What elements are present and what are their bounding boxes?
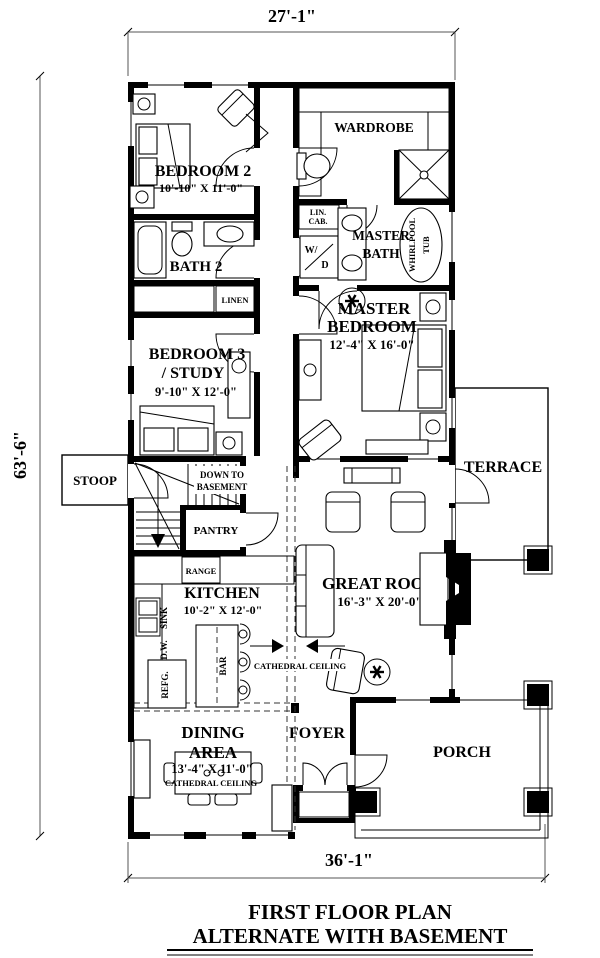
bar-stools [239, 624, 250, 700]
bedroom3-size: 9'-10" X 12'-0" [155, 385, 237, 399]
bedroom2-label: BEDROOM 2 [155, 163, 251, 180]
room-master-bath: LIN. CAB. W/ D WHIRLPOOL TUB MASTER BATH [297, 150, 449, 282]
bath2-label: BATH 2 [170, 259, 223, 275]
foyer-label: FOYER [289, 725, 345, 742]
dimension-top: 27'-1" [124, 6, 459, 80]
master-bedroom-label1: MASTER [338, 299, 411, 318]
master-bath-label1: MASTER [352, 228, 410, 243]
linen-label: LINEN [222, 295, 250, 305]
master-bath-label2: BATH [362, 246, 400, 261]
whirlpool-label1: WHIRLPOOL [407, 218, 417, 273]
title-line2: ALTERNATE WITH BASEMENT [193, 924, 508, 948]
whirlpool-label2: TUB [421, 236, 431, 254]
pantry: PANTRY [194, 525, 239, 537]
stairs-label1: DOWN TO [200, 470, 244, 480]
kitchen-label: KITCHEN [184, 585, 260, 602]
terrace-label: TERRACE [464, 459, 542, 476]
master-bedroom-size: 12'-4" X 16'-0" [329, 337, 414, 352]
porch: PORCH [352, 681, 552, 838]
dining-size: 13'-4" X 11'-0" [171, 762, 252, 776]
stoop-label: STOOP [73, 473, 117, 488]
bedroom3-label2: / STUDY [161, 365, 225, 382]
room-great-room: GREAT ROOM 16'-3" X 20'-0" CATHEDRAL CEI… [250, 468, 471, 695]
plan-title: FIRST FLOOR PLAN ALTERNATE WITH BASEMENT [167, 900, 533, 955]
dimension-left: 63'-6" [10, 72, 44, 840]
kitchen-range-label: RANGE [186, 566, 217, 576]
wd-label2: D [321, 260, 328, 271]
wd-label1: W/ [305, 245, 318, 256]
dining-label1: DINING [181, 723, 244, 742]
room-kitchen: RANGE SINK D.W. REFG. KITCHEN 10'-2" X 1… [134, 556, 294, 708]
stoop: STOOP [62, 455, 128, 505]
title-line1: FIRST FLOOR PLAN [248, 900, 452, 924]
dining-label2: AREA [189, 743, 238, 762]
floor-plan-page: 27'-1" 63'-6" 36'-1" TERRACE PORCH [0, 0, 600, 958]
fireplace [420, 540, 471, 639]
kitchen-sink-label: SINK [159, 607, 169, 629]
bedroom3-label1: BEDROOM 3 [149, 346, 245, 363]
bedroom2-size: 10'-10" X 11'-0" [159, 181, 243, 195]
great-room-size: 16'-3" X 20'-0" [337, 594, 422, 609]
porch-label: PORCH [433, 744, 491, 761]
kitchen-size: 10'-2" X 12'-0" [184, 603, 263, 617]
kitchen-refg-label: REFG. [160, 671, 170, 698]
lin-cab-label2: CAB. [309, 217, 328, 226]
floor-plan-svg: 27'-1" 63'-6" 36'-1" TERRACE PORCH [0, 0, 600, 958]
room-bath2: BATH 2 LINEN [134, 222, 254, 312]
master-bedroom-label2: BEDROOM [327, 317, 417, 336]
kitchen-bar-label: BAR [218, 656, 228, 676]
lin-cab-label1: LIN. [310, 208, 326, 217]
room-bedroom3: BEDROOM 3 / STUDY 9'-10" X 12'-0" [140, 346, 250, 455]
dining-ceiling-label: CATHEDRAL CEILING [165, 778, 258, 788]
kitchen-dw-label: D.W. [159, 640, 169, 659]
room-dining: DINING AREA 13'-4" X 11'-0" CATHEDRAL CE… [134, 723, 292, 831]
great-room-ceiling-label: CATHEDRAL CEILING [254, 661, 347, 671]
stairs-label2: BASEMENT [197, 482, 248, 492]
dim-left-label: 63'-6" [10, 431, 30, 479]
pantry-label: PANTRY [194, 525, 239, 537]
terrace-column [527, 549, 549, 571]
terrace: TERRACE [455, 388, 552, 574]
dim-top-label: 27'-1" [268, 6, 316, 26]
wardrobe-label: WARDROBE [334, 120, 414, 135]
dim-bottom-label: 36'-1" [325, 850, 373, 870]
